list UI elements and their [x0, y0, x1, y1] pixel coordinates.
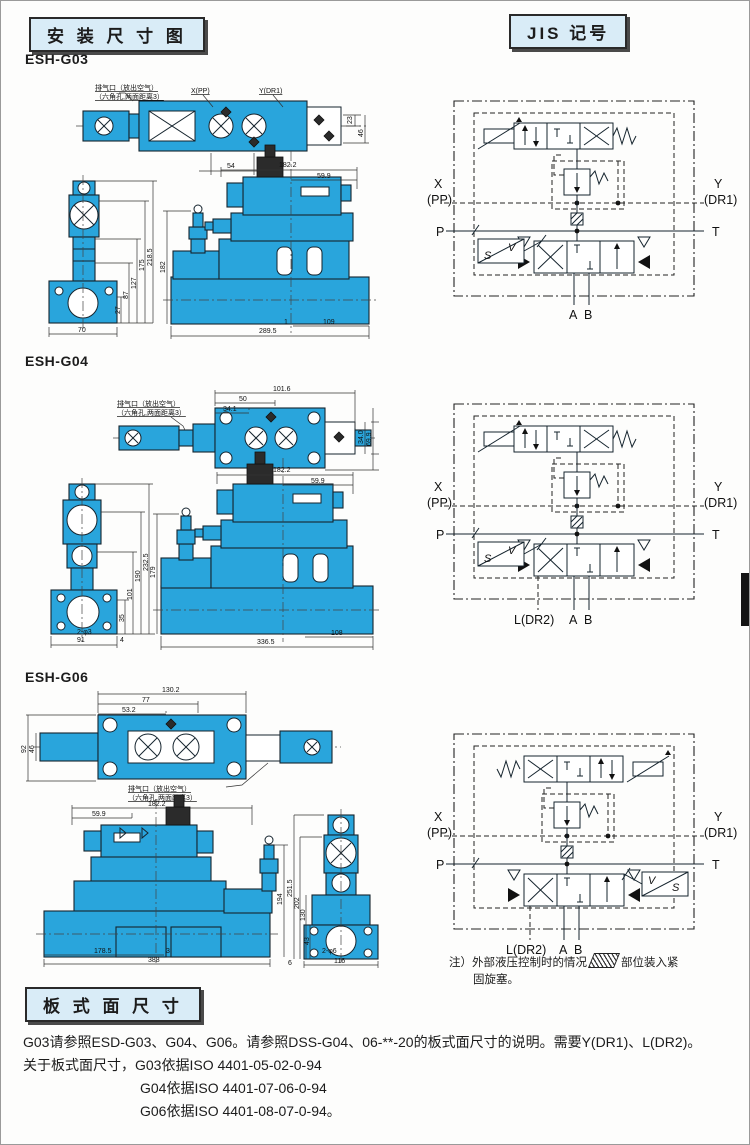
g04-label-t: T	[712, 528, 720, 542]
footer-line-3: G04依据ISO 4401-07-06-0-94	[23, 1077, 739, 1100]
g04-label-x: X	[434, 480, 443, 494]
g06-dim-202: 202	[294, 897, 301, 909]
g04-callout-line2: （六角孔,两面距离3）	[117, 408, 186, 417]
external-pilot-note: 注）外部液压控制时的情况部位装入紧 固旋塞。	[449, 953, 741, 989]
g04-jis-diagram: S V X (PP) Y (DR1) P T L(DR2) A B	[426, 394, 741, 632]
g06-dim-59-9: 59.9	[92, 811, 106, 818]
g03-port-xpp: X(PP)	[191, 88, 210, 95]
g04-label-ldr2: L(DR2)	[514, 613, 554, 627]
g04-sv-s: S	[484, 553, 492, 565]
g03-dim-1: 1	[284, 319, 288, 326]
g04-pilot-valve-symbol	[478, 420, 636, 452]
g04-label-dr1: (DR1)	[704, 496, 737, 510]
g06-main-valve-symbol: V S	[508, 868, 688, 906]
g03-dim-46: 46	[358, 129, 365, 137]
g04-dim-69-9: 69.9	[366, 432, 373, 446]
g06-dim-43: 43	[304, 937, 311, 945]
g03-label-dr1: (DR1)	[704, 193, 737, 207]
g03-label-y: Y	[714, 177, 723, 191]
g03-dim-23: 23	[347, 116, 354, 124]
g03-callout-line1: 排气口（放出空气）	[95, 83, 158, 92]
g03-dim-182-2: 182.2	[279, 162, 297, 169]
g04-plug-symbol	[571, 498, 583, 544]
g03-label-t: T	[712, 225, 720, 239]
g03-dim-59-9: 59.9	[317, 173, 331, 180]
g04-dimension-drawing: 101.6 50 34.1 排气口（放出空气） （六角孔,两面距离3） 34.0…	[21, 386, 381, 654]
g06-jis-diagram: V S X (PP) Y (DR1) P T L(DR2) A B	[426, 724, 741, 962]
g06-relief-valve-symbol	[542, 782, 614, 842]
g03-sv-s: S	[484, 250, 492, 262]
page-edge-tab	[741, 573, 749, 626]
g03-dim-218-5: 218.5	[147, 248, 154, 266]
g03-label-a: A	[569, 308, 578, 322]
g03-callout-line2: （六角孔,两面距离3）	[95, 92, 164, 101]
model-label-g03: ESH-G03	[25, 51, 88, 67]
g03-dim-54: 54	[227, 163, 235, 170]
g06-dim-77: 77	[142, 697, 150, 704]
model-label-g06: ESH-G06	[25, 669, 88, 685]
g06-dim-2phi6: 2-φ6	[322, 948, 337, 955]
g03-label-x: X	[434, 177, 443, 191]
g04-label-b: B	[584, 613, 592, 627]
g03-port-ydr1: Y(DR1)	[259, 88, 282, 95]
g04-dim-108: 108	[331, 630, 343, 637]
g04-front-view: 182.2 59.9 179 336.5 108	[150, 452, 379, 650]
g06-callout-line1: 排气口（放出空气）	[128, 784, 191, 793]
footer-paragraph: G03请参照ESD-G03、G04、G06。请参照DSS-G04、06-**-2…	[23, 1031, 739, 1123]
g06-side-view: 251.5 202 130 43 6 2-φ6 116	[287, 809, 378, 968]
g03-dim-87: 87	[123, 291, 130, 299]
g04-dim-179: 179	[150, 566, 157, 578]
note-text-1: 注）外部液压控制时的情况	[449, 957, 587, 969]
g03-jis-diagram: S V X (PP) Y (DR1) P T A B	[426, 91, 741, 323]
g03-dim-182: 182	[160, 261, 167, 273]
g06-front-view: 182.2 59.9 194 388 178	[36, 795, 288, 967]
g04-dim-50: 50	[239, 396, 247, 403]
g04-label-y: Y	[714, 480, 723, 494]
g06-dim-178-5: 178.5	[94, 948, 112, 955]
g03-dim-127: 127	[131, 277, 138, 289]
g03-dim-109: 109	[323, 319, 335, 326]
g06-dim-46: 46	[29, 745, 36, 753]
g06-label-p: P	[436, 858, 444, 872]
g04-dim-232-5: 232.5	[143, 553, 150, 571]
g04-dim-190: 190	[135, 570, 142, 582]
g03-dimension-drawing: 排气口（放出空气） （六角孔,两面距离3） X(PP) Y(DR1) 54 23…	[21, 81, 381, 343]
footer-line-2: 关于板式面尺寸，G03依据ISO 4401-05-02-0-94	[23, 1054, 739, 1077]
model-label-g04: ESH-G04	[25, 353, 88, 369]
g03-dim-289-5: 289.5	[259, 328, 277, 335]
g06-dim-388: 388	[148, 957, 160, 964]
note-text-2: 部位装入紧	[621, 957, 679, 969]
g06-label-x: X	[434, 810, 443, 824]
g06-dimension-drawing: 130.2 77 53.2 92 46 排气口（放出空气） （六角孔,两面距离3…	[16, 687, 391, 969]
g06-label-pp: (PP)	[427, 826, 452, 840]
g03-dim-27: 27	[115, 306, 122, 314]
g04-label-p: P	[436, 528, 444, 542]
hatched-plug-icon	[588, 953, 620, 968]
g06-dim-3: 3	[166, 948, 170, 955]
g03-label-b: B	[584, 308, 592, 322]
g06-dim-130-2: 130.2	[162, 687, 180, 694]
note-text-3: 固旋塞。	[449, 974, 519, 986]
g03-plug-symbol	[571, 195, 583, 241]
g04-side-view: 91 2-φ3 4 35 101 190 232.5	[51, 478, 155, 648]
g04-dim-35: 35	[119, 614, 126, 622]
g04-main-valve-symbol: S V	[478, 538, 650, 576]
g04-dim-59-9: 59.9	[311, 478, 325, 485]
g06-label-t: T	[712, 858, 720, 872]
g06-dim-194: 194	[277, 893, 284, 905]
g04-dim-4: 4	[120, 637, 124, 644]
g06-dim-53-2: 53.2	[122, 707, 136, 714]
g06-pilot-valve-symbol	[497, 750, 671, 782]
g06-dim-130: 130	[300, 909, 307, 921]
g03-relief-valve-symbol	[552, 149, 624, 209]
g04-dim-34-1: 34.1	[223, 406, 237, 413]
g04-dim-91: 91	[77, 637, 85, 644]
g04-dim-101: 101	[127, 588, 134, 600]
g04-dim-182-2: 182.2	[273, 467, 291, 474]
g03-dim-70: 70	[78, 327, 86, 334]
catalog-page: 安 装 尺 寸 图 JIS 记号 ESH-G03 排气口（放出空气） （六角孔,…	[0, 0, 750, 1145]
g06-dim-182-2: 182.2	[148, 801, 166, 808]
g03-label-p: P	[436, 225, 444, 239]
g06-dim-116: 116	[334, 958, 345, 965]
g03-side-view: 70 27 87 127 175 218.5	[49, 175, 157, 337]
g04-dim-101-6: 101.6	[273, 386, 291, 393]
g06-dim-92: 92	[21, 745, 28, 753]
g04-dim-34-0: 34.0	[358, 430, 365, 444]
g06-dim-6: 6	[288, 960, 292, 967]
g03-main-valve-symbol: S V	[478, 235, 650, 273]
g06-dim-251-5: 251.5	[287, 879, 294, 897]
g06-sv-s: S	[672, 882, 680, 894]
g06-plug-symbol	[561, 828, 573, 874]
g04-dim-2phi3: 2-φ3	[77, 629, 92, 636]
g06-top-view: 130.2 77 53.2 92 46 排气口（放出空气） （六角孔,两面距离3…	[21, 687, 341, 802]
g04-relief-valve-symbol	[552, 452, 624, 512]
g03-dim-175: 175	[139, 259, 146, 271]
g04-label-a: A	[569, 613, 578, 627]
g06-label-dr1: (DR1)	[704, 826, 737, 840]
g03-top-view: 排气口（放出空气） （六角孔,两面距离3） X(PP) Y(DR1) 54 23…	[76, 83, 369, 175]
page-title: 安 装 尺 寸 图	[29, 17, 205, 52]
footer-section-title: 板 式 面 尺 寸	[25, 987, 201, 1022]
g03-pilot-valve-symbol	[478, 117, 636, 149]
footer-line-4: G06依据ISO 4401-08-07-0-94。	[23, 1100, 739, 1123]
g04-top-view: 101.6 50 34.1 排气口（放出空气） （六角孔,两面距离3） 34.0…	[113, 386, 379, 470]
jis-symbol-title: JIS 记号	[509, 14, 627, 49]
g04-callout-line1: 排气口（放出空气）	[117, 399, 180, 408]
g03-front-view: 182.2 59.9 182 289.5 1 109	[160, 145, 377, 339]
g04-label-pp: (PP)	[427, 496, 452, 510]
g03-label-pp: (PP)	[427, 193, 452, 207]
footer-line-1: G03请参照ESD-G03、G04、G06。请参照DSS-G04、06-**-2…	[23, 1031, 739, 1054]
g04-dim-336-5: 336.5	[257, 639, 275, 646]
g06-label-y: Y	[714, 810, 723, 824]
